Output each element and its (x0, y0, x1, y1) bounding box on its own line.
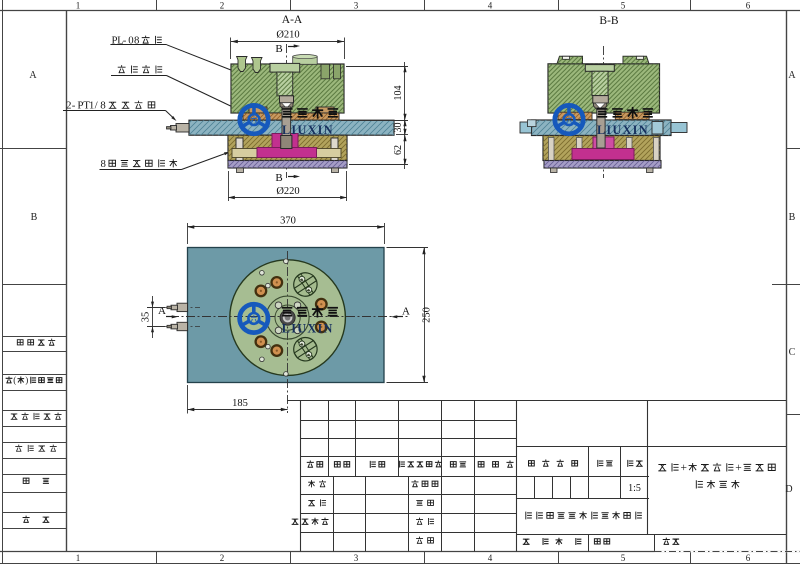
svg-text:3: 3 (354, 553, 359, 563)
svg-text:4: 4 (488, 553, 493, 563)
svg-text:Ø220: Ø220 (276, 186, 299, 197)
svg-text:A: A (402, 306, 410, 318)
svg-text:5: 5 (621, 1, 626, 11)
svg-text:3: 3 (354, 1, 359, 11)
svg-text:1: 1 (89, 100, 95, 112)
svg-text:A: A (158, 305, 166, 317)
svg-text:2: 2 (66, 100, 72, 112)
svg-text:1: 1 (76, 553, 81, 563)
svg-text:250: 250 (422, 307, 433, 323)
svg-text:C: C (789, 347, 796, 358)
svg-text:30: 30 (393, 123, 404, 133)
svg-text:+: + (681, 462, 688, 474)
svg-text:185: 185 (232, 398, 248, 409)
svg-text:A: A (29, 70, 37, 81)
svg-text:(: ( (13, 375, 16, 385)
svg-text:8: 8 (100, 100, 106, 112)
svg-text:LIUXIN: LIUXIN (282, 123, 334, 137)
svg-text:62: 62 (393, 145, 404, 155)
svg-text:8: 8 (101, 158, 106, 170)
svg-text:A: A (788, 70, 796, 81)
svg-text:-: - (72, 100, 76, 112)
svg-text:LIUXIN: LIUXIN (282, 322, 334, 336)
svg-text:+: + (735, 462, 742, 474)
svg-text:B: B (31, 212, 38, 223)
svg-text:104: 104 (393, 86, 404, 101)
svg-text:B-B: B-B (599, 15, 619, 27)
svg-text:35: 35 (141, 312, 152, 323)
svg-text:2: 2 (220, 1, 225, 11)
svg-text:1:5: 1:5 (628, 483, 641, 494)
svg-text:B: B (275, 172, 282, 184)
svg-text:370: 370 (280, 216, 296, 227)
svg-text:Ø210: Ø210 (276, 30, 299, 41)
svg-text:6: 6 (746, 553, 751, 563)
svg-text:1: 1 (76, 1, 81, 11)
svg-text:LIUXIN: LIUXIN (597, 123, 649, 137)
svg-text:): ) (25, 375, 28, 385)
svg-text:A-A: A-A (282, 14, 303, 26)
svg-text:B: B (789, 212, 796, 223)
svg-text:B: B (275, 43, 282, 55)
svg-text:D: D (785, 484, 792, 495)
svg-text:2: 2 (220, 553, 225, 563)
svg-text:6: 6 (746, 1, 751, 11)
svg-text:5: 5 (621, 553, 626, 563)
svg-text:4: 4 (488, 1, 493, 11)
